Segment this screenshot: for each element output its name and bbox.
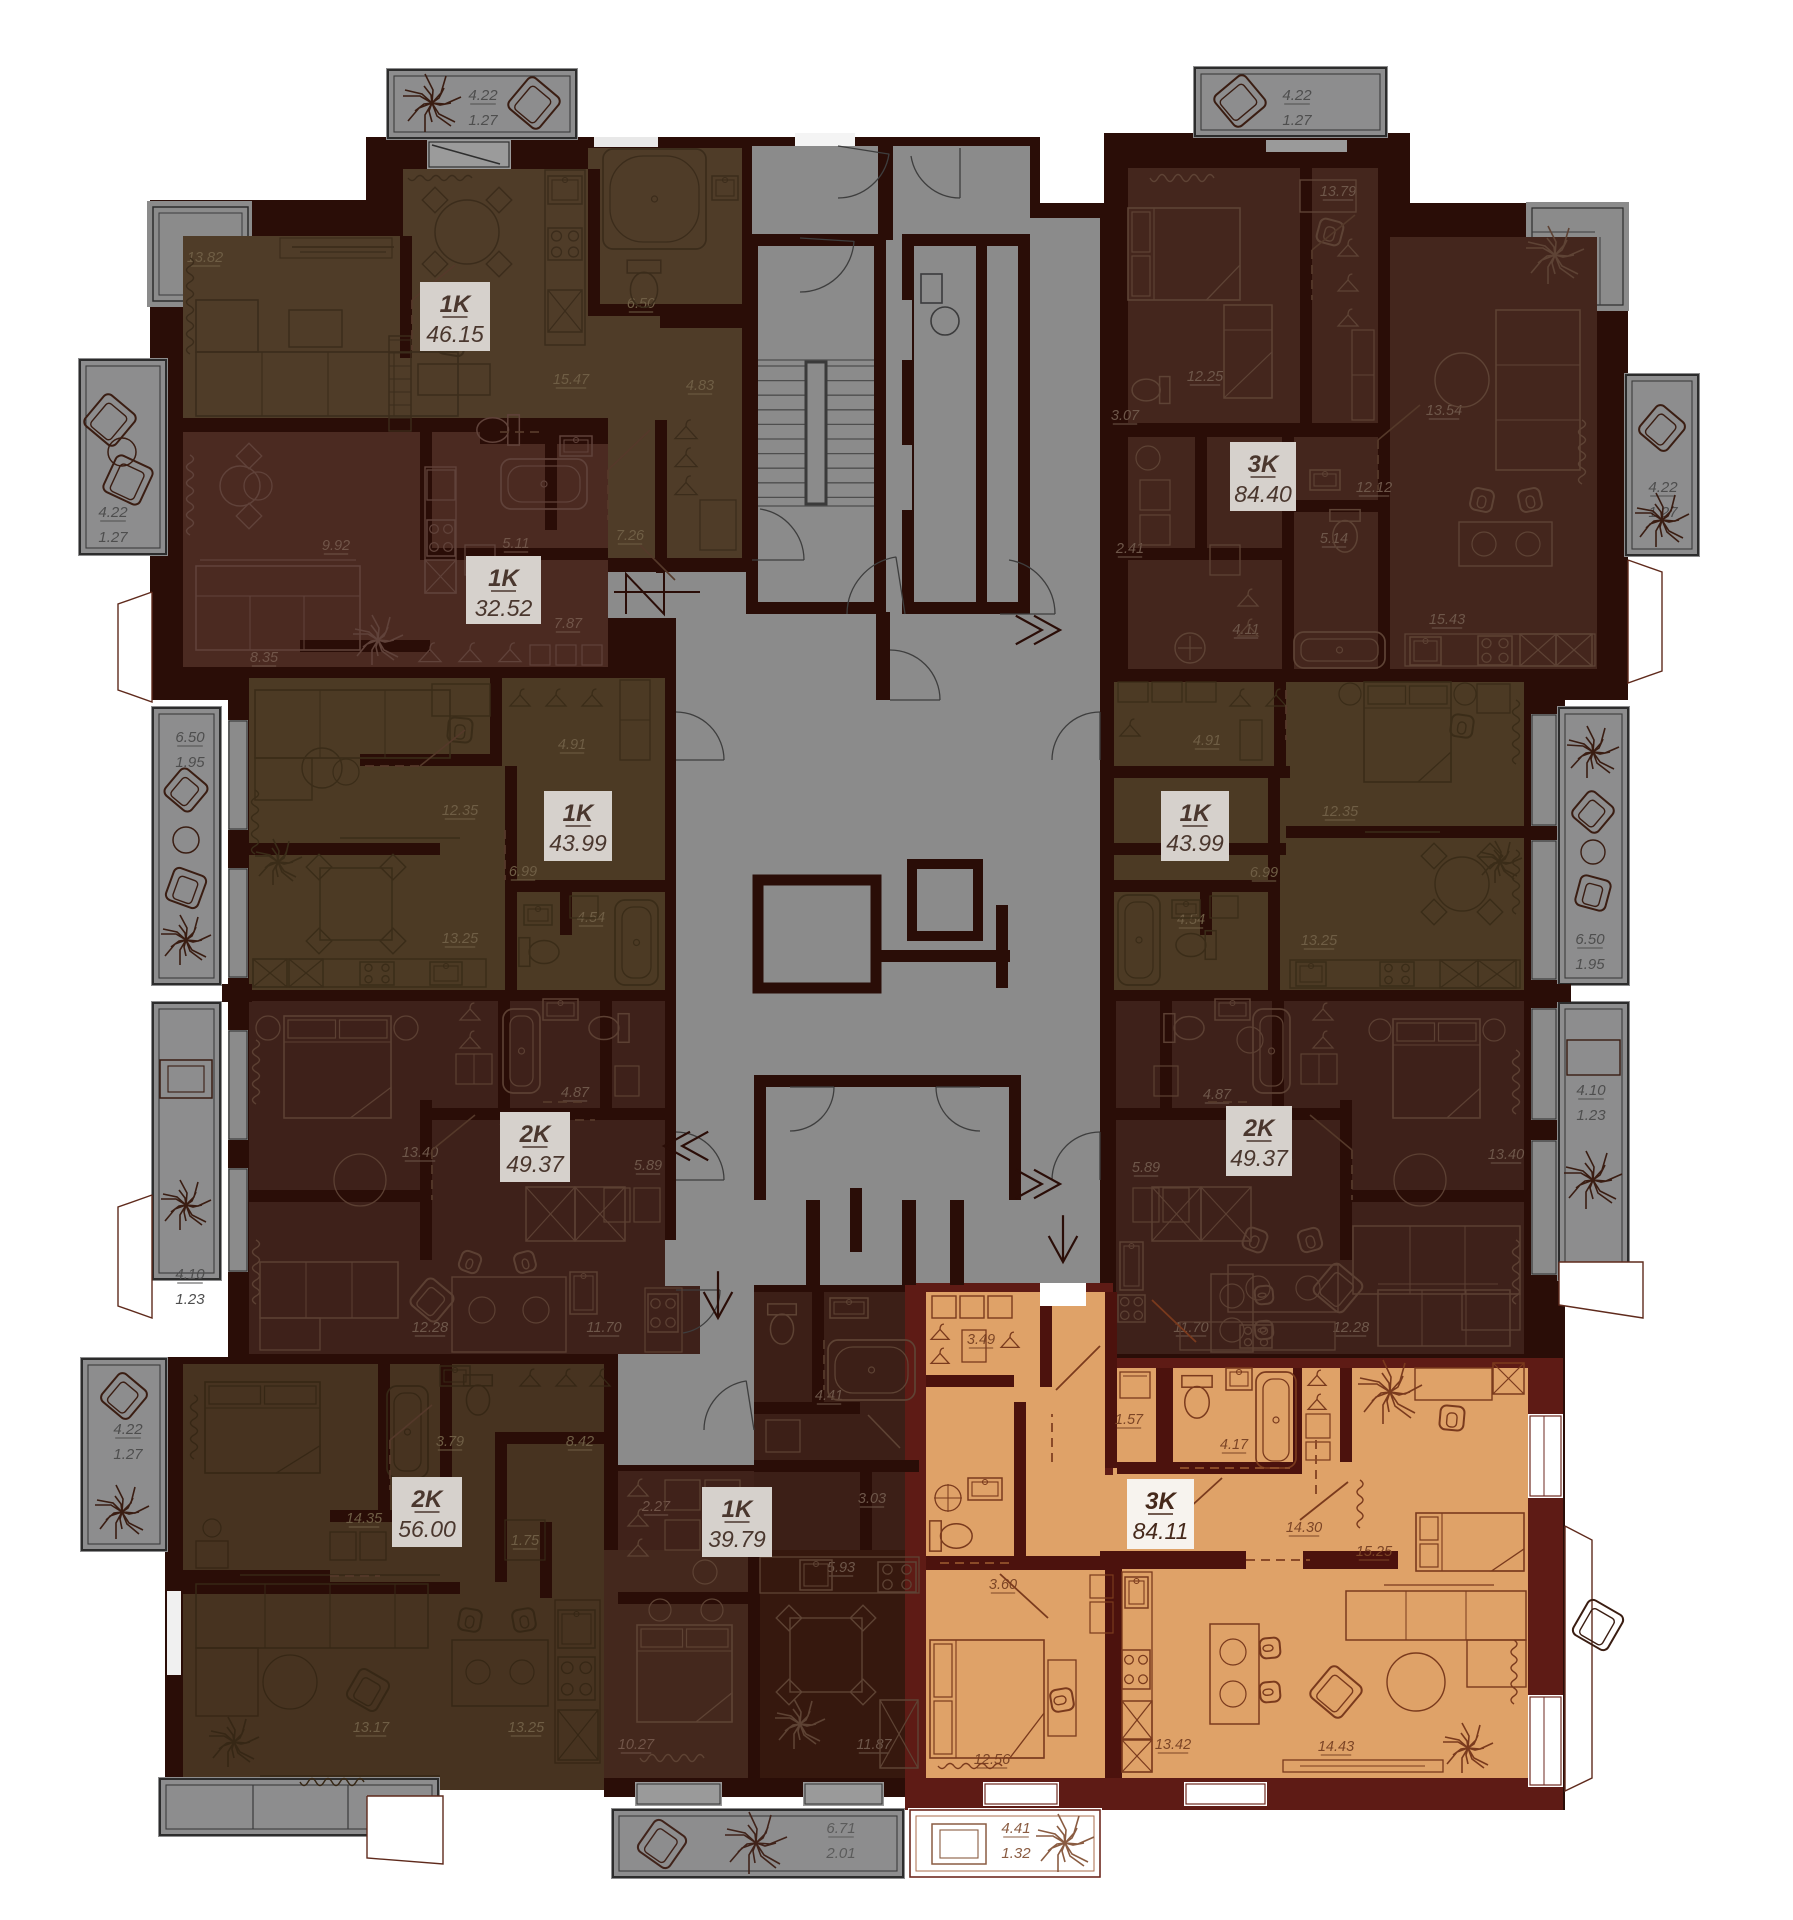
svg-text:4.41: 4.41 xyxy=(1001,1820,1030,1837)
svg-text:4.22: 4.22 xyxy=(113,1421,143,1438)
svg-text:39.79: 39.79 xyxy=(708,1526,766,1552)
svg-text:84.11: 84.11 xyxy=(1133,1518,1189,1544)
svg-text:13.40: 13.40 xyxy=(1488,1147,1524,1163)
svg-text:4.91: 4.91 xyxy=(558,737,586,753)
svg-text:56.00: 56.00 xyxy=(398,1516,456,1542)
svg-text:13.25: 13.25 xyxy=(442,931,479,947)
svg-text:4.17: 4.17 xyxy=(1220,1437,1249,1453)
svg-text:13.42: 13.42 xyxy=(1155,1737,1191,1753)
svg-text:12.12: 12.12 xyxy=(1356,480,1392,496)
svg-text:4.22: 4.22 xyxy=(468,87,498,104)
svg-text:2K: 2K xyxy=(519,1121,552,1148)
svg-text:13.17: 13.17 xyxy=(353,1720,390,1736)
svg-text:12.28: 12.28 xyxy=(412,1320,448,1336)
svg-text:8.35: 8.35 xyxy=(250,650,279,666)
svg-text:1K: 1K xyxy=(1180,800,1212,827)
svg-text:43.99: 43.99 xyxy=(549,830,607,856)
svg-text:2.01: 2.01 xyxy=(825,1845,855,1862)
svg-text:1K: 1K xyxy=(440,291,472,318)
svg-text:2K: 2K xyxy=(1243,1115,1276,1142)
svg-text:5.89: 5.89 xyxy=(1132,1160,1160,1176)
svg-text:1.27: 1.27 xyxy=(113,1446,143,1463)
svg-text:12.35: 12.35 xyxy=(1322,804,1359,820)
svg-text:49.37: 49.37 xyxy=(1230,1145,1289,1171)
svg-text:6.99: 6.99 xyxy=(1250,865,1278,881)
svg-text:4.91: 4.91 xyxy=(1193,733,1221,749)
svg-text:15.43: 15.43 xyxy=(1429,612,1465,628)
svg-text:12.25: 12.25 xyxy=(1187,369,1224,385)
svg-text:2K: 2K xyxy=(411,1486,444,1513)
svg-text:10.27: 10.27 xyxy=(618,1737,655,1753)
svg-text:43.99: 43.99 xyxy=(1166,830,1224,856)
svg-text:6.50: 6.50 xyxy=(627,296,655,312)
svg-text:14.30: 14.30 xyxy=(1286,1520,1322,1536)
svg-text:46.15: 46.15 xyxy=(426,321,484,347)
svg-text:4.22: 4.22 xyxy=(1282,87,1312,104)
svg-text:3.03: 3.03 xyxy=(858,1491,886,1507)
svg-text:4.87: 4.87 xyxy=(561,1085,590,1101)
svg-text:1K: 1K xyxy=(488,565,520,592)
svg-text:49.37: 49.37 xyxy=(506,1151,565,1177)
svg-text:13.79: 13.79 xyxy=(1320,184,1356,200)
svg-text:3K: 3K xyxy=(1145,1488,1177,1515)
svg-text:6.71: 6.71 xyxy=(826,1820,855,1837)
svg-text:5.11: 5.11 xyxy=(502,536,529,552)
svg-text:11.70: 11.70 xyxy=(586,1320,621,1336)
svg-text:84.40: 84.40 xyxy=(1234,481,1292,507)
svg-text:1.23: 1.23 xyxy=(1576,1107,1606,1124)
svg-text:3.49: 3.49 xyxy=(967,1332,995,1348)
svg-text:12.28: 12.28 xyxy=(1333,1320,1369,1336)
svg-text:5.89: 5.89 xyxy=(634,1158,662,1174)
svg-text:4.87: 4.87 xyxy=(1203,1087,1232,1103)
svg-text:6.99: 6.99 xyxy=(509,864,537,880)
svg-text:8.42: 8.42 xyxy=(566,1434,594,1450)
svg-text:3K: 3K xyxy=(1248,451,1280,478)
svg-text:1.27: 1.27 xyxy=(1282,112,1312,129)
svg-text:1K: 1K xyxy=(563,800,595,827)
svg-text:1.27: 1.27 xyxy=(468,112,498,129)
svg-text:1.27: 1.27 xyxy=(98,529,128,546)
svg-text:13.25: 13.25 xyxy=(508,1720,545,1736)
svg-text:13.25: 13.25 xyxy=(1301,933,1338,949)
svg-text:11.87: 11.87 xyxy=(856,1737,892,1753)
svg-text:15.25: 15.25 xyxy=(1356,1544,1393,1560)
svg-text:1K: 1K xyxy=(722,1496,754,1523)
svg-text:7.26: 7.26 xyxy=(616,528,645,544)
svg-text:6.50: 6.50 xyxy=(1575,931,1605,948)
svg-text:5.93: 5.93 xyxy=(827,1560,855,1576)
svg-text:12.56: 12.56 xyxy=(974,1752,1011,1768)
svg-text:2.27: 2.27 xyxy=(641,1499,671,1515)
svg-text:14.35: 14.35 xyxy=(346,1511,383,1527)
svg-text:1.57: 1.57 xyxy=(1115,1412,1144,1428)
svg-text:32.52: 32.52 xyxy=(475,595,533,621)
svg-text:1.95: 1.95 xyxy=(175,754,205,771)
svg-text:1.75: 1.75 xyxy=(511,1533,540,1549)
svg-text:6.50: 6.50 xyxy=(175,729,205,746)
svg-text:4.83: 4.83 xyxy=(686,378,714,394)
svg-text:12.35: 12.35 xyxy=(442,803,479,819)
svg-text:4.10: 4.10 xyxy=(1576,1082,1606,1099)
svg-text:15.47: 15.47 xyxy=(553,372,590,388)
svg-text:7.87: 7.87 xyxy=(554,616,583,632)
svg-text:3.79: 3.79 xyxy=(436,1434,464,1450)
svg-text:9.92: 9.92 xyxy=(322,538,350,554)
svg-text:1.23: 1.23 xyxy=(175,1291,205,1308)
svg-text:13.54: 13.54 xyxy=(1426,403,1462,419)
svg-text:4.22: 4.22 xyxy=(98,504,128,521)
svg-text:3.07: 3.07 xyxy=(1111,408,1140,424)
svg-text:14.43: 14.43 xyxy=(1318,1739,1354,1755)
svg-text:1.95: 1.95 xyxy=(1575,956,1605,973)
svg-text:4.10: 4.10 xyxy=(175,1266,205,1283)
svg-text:1.32: 1.32 xyxy=(1001,1845,1031,1862)
svg-text:4.22: 4.22 xyxy=(1648,479,1678,496)
